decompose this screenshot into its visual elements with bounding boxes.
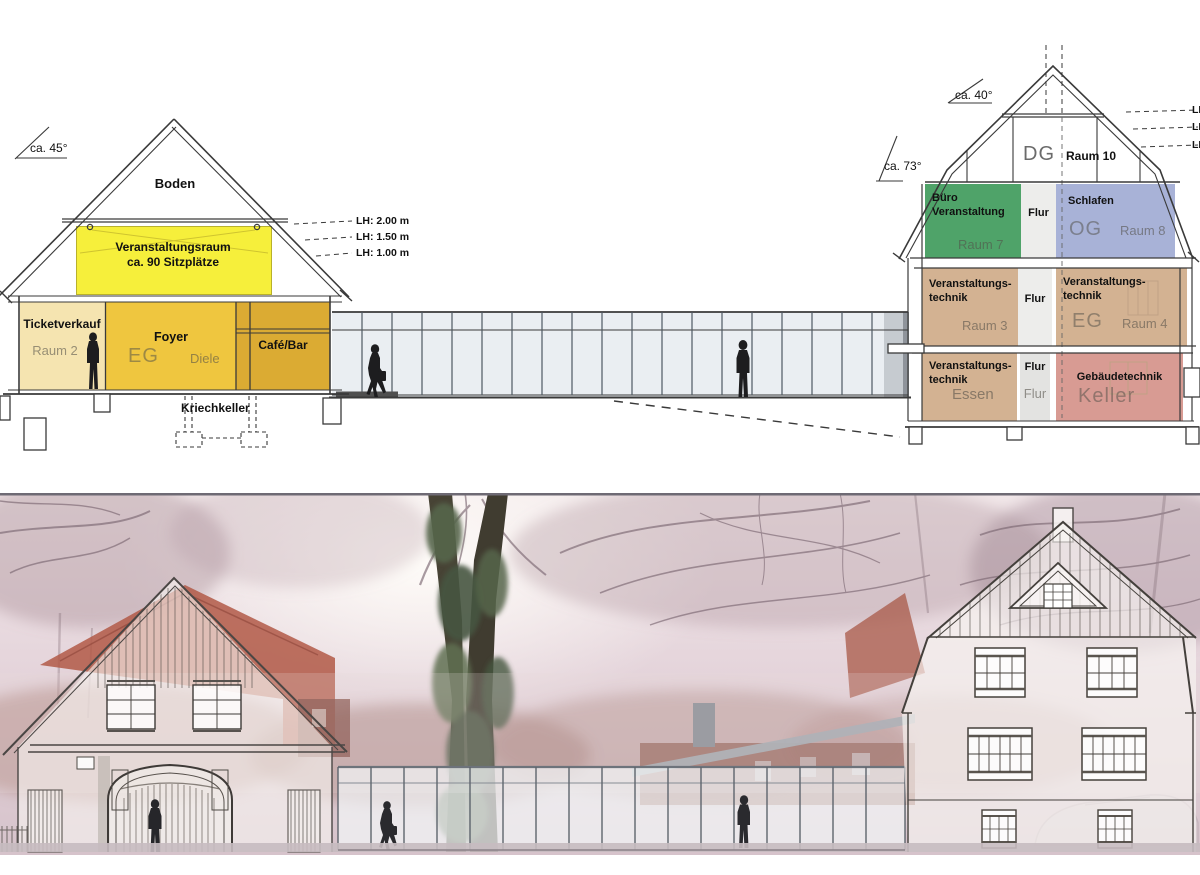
right-height-label-2: LH (1192, 121, 1200, 133)
cafe-label: Café/Bar (236, 338, 330, 353)
foyer-diele-ghost: Diele (190, 351, 220, 366)
technik2-room-number: Raum 4 (1122, 316, 1168, 331)
architectural-sheet: ca. 45° Boden Veranstaltungsraum ca. 90 … (0, 0, 1200, 875)
height-label-3: LH: 1.00 m (356, 247, 409, 259)
barn-door (98, 756, 232, 852)
kg-flur-ghost: Flur (1020, 386, 1050, 401)
hall-label-line2: ca. 90 Sitzplätze (80, 255, 266, 270)
ticket-label: Ticketverkauf (18, 317, 106, 332)
height-label-1: LH: 2.00 m (356, 215, 409, 227)
left-building-section (0, 119, 352, 450)
schlafen-label: Schlafen (1068, 195, 1114, 209)
buero-label-line2: Veranstaltung (932, 206, 1005, 220)
glass-corridor-section (329, 312, 911, 437)
right-lower-roof-angle-label: ca. 73° (884, 159, 922, 173)
technik1-room-number: Raum 3 (962, 318, 1008, 333)
glass-corridor-photo (338, 767, 905, 850)
person-silhouette (87, 332, 99, 389)
kriechkeller-label: Kriechkeller (181, 401, 250, 416)
buero-room-number: Raum 7 (958, 237, 1004, 252)
dg-room-number: Raum 10 (1066, 149, 1116, 164)
photo-top-border (0, 493, 1200, 496)
eg-ghost: EG (1072, 310, 1103, 333)
right-upper-roof-angle-label: ca. 40° (955, 88, 993, 102)
technik3-label: Veranstaltungs- technik (929, 360, 1012, 388)
buero-label-line1: Büro (932, 192, 1005, 206)
attic-label: Boden (140, 176, 210, 192)
technik2-label: Veranstaltungs- technik (1063, 276, 1146, 304)
buero-label: Büro Veranstaltung (932, 192, 1005, 220)
schlafen-room-number: Raum 8 (1120, 223, 1166, 238)
dg-ghost: DG (1023, 143, 1055, 166)
photomontage-rendering (0, 493, 1200, 855)
technik2-line2: technik (1063, 290, 1146, 304)
height-label-2: LH: 1.50 m (356, 231, 409, 243)
keller-ghost: Keller (1078, 385, 1135, 408)
hall-label-line1: Veranstaltungsraum (80, 240, 266, 255)
hall-label: Veranstaltungsraum ca. 90 Sitzplätze (80, 240, 266, 270)
essen-ghost: Essen (952, 386, 994, 403)
right-height-label-1: LH (1192, 104, 1200, 116)
technik1-label: Veranstaltungs- technik (929, 278, 1012, 306)
foyer-eg-ghost: EG (128, 345, 159, 368)
technik2-line1: Veranstaltungs- (1063, 276, 1146, 290)
left-roof-angle-label: ca. 45° (30, 141, 68, 155)
og-ghost: OG (1069, 218, 1102, 241)
eg-flur-label: Flur (1018, 293, 1052, 307)
technik1-line1: Veranstaltungs- (929, 278, 1012, 292)
technik3-line1: Veranstaltungs- (929, 360, 1012, 374)
technik1-line2: technik (929, 292, 1012, 306)
og-flur-label: Flur (1021, 207, 1056, 221)
ticket-room-number: Raum 2 (20, 343, 90, 358)
kg-flur-label: Flur (1020, 361, 1050, 375)
foyer-label: Foyer (106, 330, 236, 346)
gebaeudetechnik-label: Gebäudetechnik (1056, 371, 1183, 385)
right-height-label-3: LH (1192, 139, 1200, 151)
